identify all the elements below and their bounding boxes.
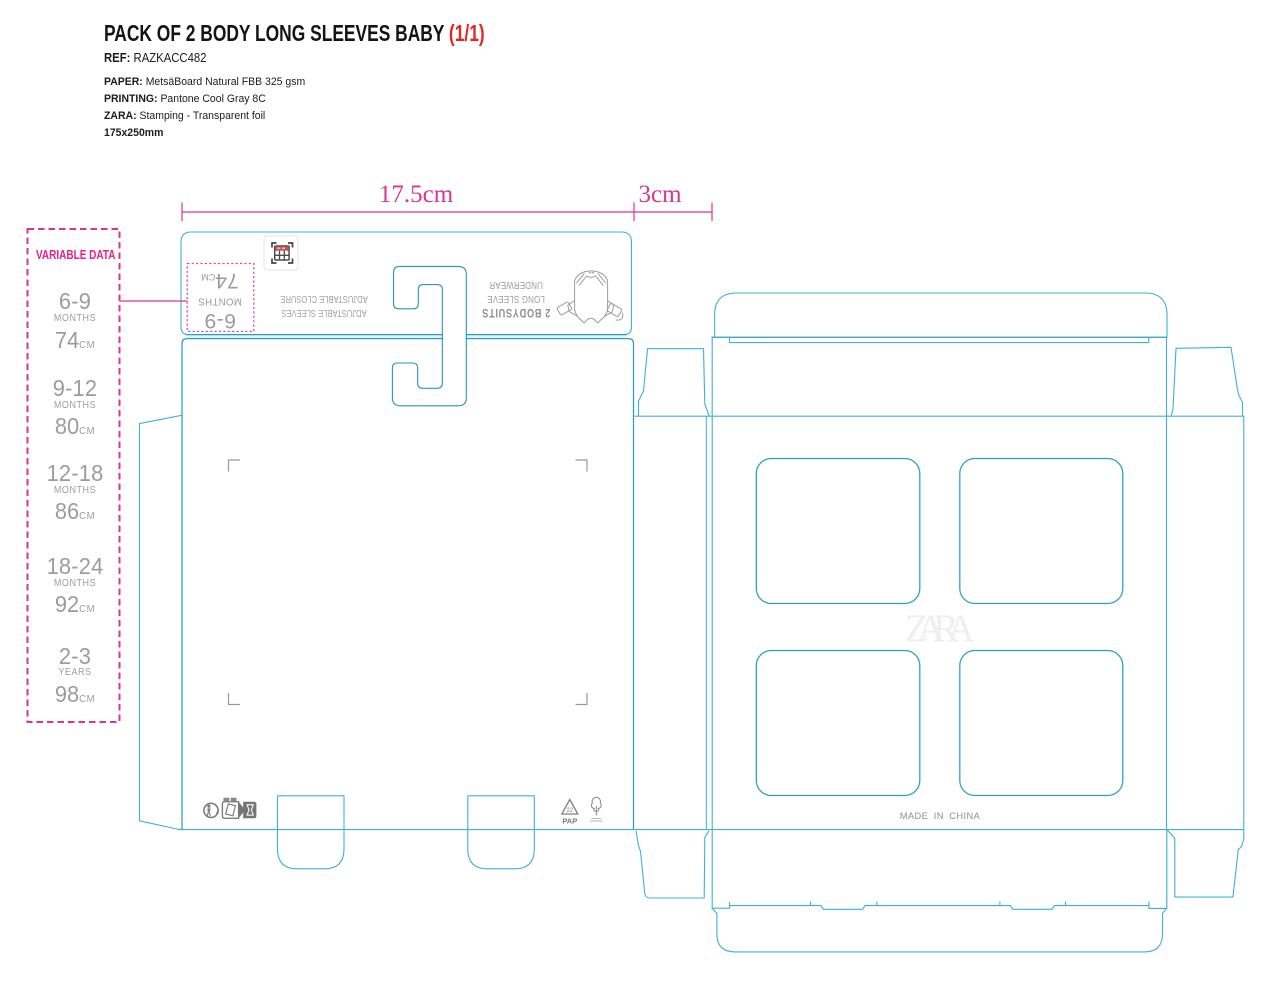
svg-text:22: 22 <box>566 808 573 814</box>
svg-text:PAP: PAP <box>562 817 577 826</box>
